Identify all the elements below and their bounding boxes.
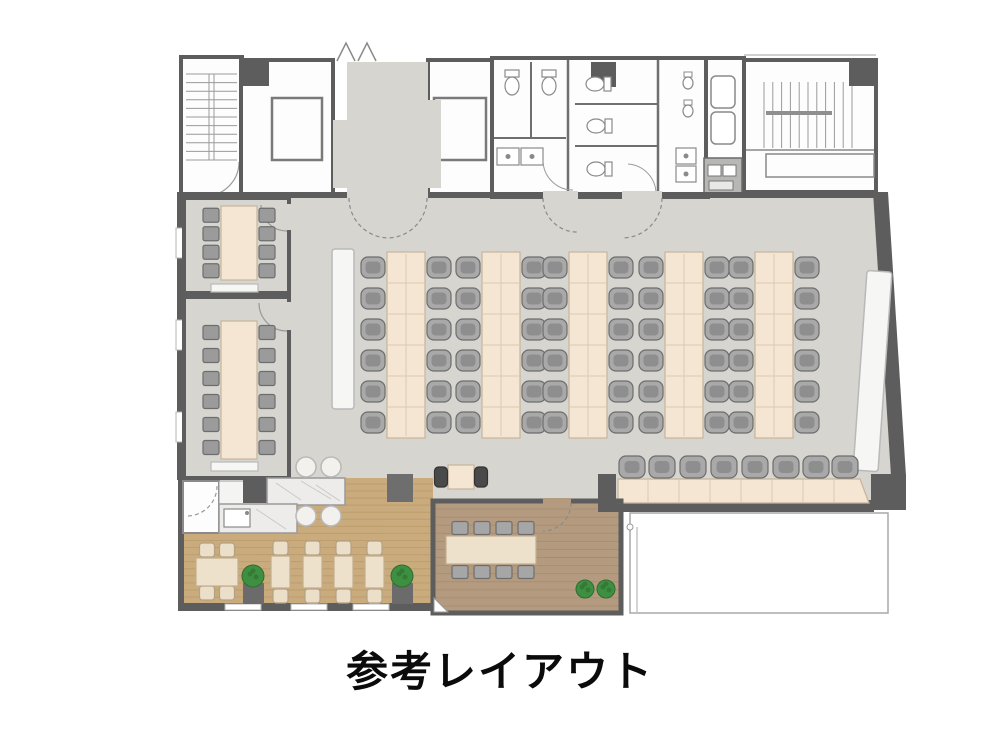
chair-seat (644, 386, 659, 398)
chair-seat (461, 386, 476, 398)
chair-seat (710, 386, 725, 398)
meeting-chair (259, 208, 275, 222)
chair-seat (710, 324, 725, 336)
cafe-chair (220, 543, 235, 557)
cafe-chair (367, 541, 382, 555)
door-gap (347, 191, 428, 199)
chair-seat (734, 262, 749, 274)
chair-seat (614, 386, 629, 398)
sink-drain (506, 154, 511, 159)
chair-seat (800, 355, 815, 367)
meeting-chair (203, 372, 219, 386)
chair-seat (366, 417, 381, 429)
chair-seat (800, 417, 815, 429)
stool (321, 457, 341, 477)
chair-seat (734, 324, 749, 336)
door-gap (622, 191, 662, 199)
chair-seat (548, 262, 563, 274)
chair-seat (527, 386, 542, 398)
chair-seat (734, 386, 749, 398)
wall-corner (871, 474, 906, 510)
chair-seat (461, 262, 476, 274)
plant-leaf (254, 575, 259, 580)
plant-leaf (604, 582, 609, 587)
chair-seat (614, 324, 629, 336)
wood-room-table (446, 536, 536, 564)
chair-seat (779, 461, 794, 473)
chair-seat (461, 417, 476, 429)
wood-room-chair (474, 522, 490, 535)
chair-seat (644, 293, 659, 305)
sink-drain (684, 172, 689, 177)
cafe-table-2top (271, 556, 290, 588)
chair-seat (432, 262, 447, 274)
survey-marker (627, 524, 633, 530)
chair-seat (366, 355, 381, 367)
wood-room-chair (496, 566, 512, 579)
urinal-icon (684, 72, 692, 77)
chair-seat (527, 355, 542, 367)
meeting-chair (203, 395, 219, 409)
faucet (245, 511, 249, 515)
window (225, 604, 261, 610)
chair-seat (710, 293, 725, 305)
toilet-icon (587, 119, 612, 133)
toilet-bowl (587, 119, 605, 133)
chair-seat (432, 324, 447, 336)
standing-table (448, 465, 474, 489)
toilet-bowl (542, 77, 556, 95)
wall-block (243, 480, 267, 503)
wall-block (849, 62, 875, 86)
meeting-chair (259, 326, 275, 340)
wood-room-chair (496, 522, 512, 535)
chair-seat (548, 293, 563, 305)
plan-caption: 参考レイアウト (0, 638, 1000, 699)
door-gap (543, 498, 571, 505)
lobby-floor (347, 62, 428, 198)
wood-room-chair (474, 566, 490, 579)
kitchenette-part (708, 165, 721, 176)
toilet-bowl (505, 77, 519, 95)
meeting-chair (259, 264, 275, 278)
chair-seat (432, 386, 447, 398)
toilet-icon (505, 70, 519, 95)
cafe-table-2top (334, 556, 353, 588)
toilet-icon (586, 77, 611, 91)
door-leaf (337, 43, 355, 61)
cafe-chair (305, 541, 320, 555)
chair-seat (644, 417, 659, 429)
cafe-chair (336, 541, 351, 555)
cafe-table-2top (303, 556, 322, 588)
chair-seat (644, 262, 659, 274)
chair-seat (625, 461, 640, 473)
chair-seat (548, 417, 563, 429)
chair-seat (710, 262, 725, 274)
toilet-tank (542, 70, 556, 77)
plant-leaf (586, 588, 591, 593)
elevator-car (434, 98, 486, 160)
chair-seat (366, 324, 381, 336)
chair-seat (461, 355, 476, 367)
wood-room-chair (518, 522, 534, 535)
chair-seat (748, 461, 763, 473)
cafe-chair (200, 543, 215, 557)
column (387, 474, 413, 502)
chair-seat (686, 461, 701, 473)
toilet-tank (605, 119, 612, 133)
toilet-bowl (586, 77, 604, 91)
chair-seat (614, 262, 629, 274)
plant-leaf (400, 569, 405, 574)
door-leaf (358, 43, 376, 61)
meeting-chair (259, 441, 275, 455)
meeting-chair (259, 245, 275, 259)
stool (296, 457, 316, 477)
chair-seat (655, 461, 670, 473)
meeting-chair (259, 418, 275, 432)
wood-room-chair (518, 566, 534, 579)
toilet-icon (542, 70, 556, 95)
cafe-chair (273, 589, 288, 603)
window (353, 604, 389, 610)
chair-seat (366, 262, 381, 274)
chair-seat (366, 386, 381, 398)
cafe-chair (305, 589, 320, 603)
elevator-car (272, 98, 322, 160)
whiteboard (211, 284, 258, 292)
chair-seat (809, 461, 824, 473)
cafe-chair (200, 586, 215, 600)
urinal-icon (684, 100, 692, 105)
chair-seat (710, 417, 725, 429)
chair-seat (614, 355, 629, 367)
chair-seat (548, 386, 563, 398)
lobby-floor (333, 120, 347, 188)
chair-seat (734, 293, 749, 305)
kitchen-counter (267, 478, 345, 505)
meeting-chair (259, 395, 275, 409)
toilet-bowl (587, 162, 605, 176)
meeting-table (221, 206, 257, 280)
balcony-outline (630, 513, 888, 613)
chair-seat (644, 355, 659, 367)
meeting-chair (203, 227, 219, 241)
chair-seat (432, 293, 447, 305)
whiteboard (332, 249, 354, 409)
meeting-chair (259, 227, 275, 241)
chair-seat (461, 324, 476, 336)
chair-seat (548, 324, 563, 336)
meeting-chair (203, 264, 219, 278)
chair-seat (527, 262, 542, 274)
sink-drain (684, 154, 689, 159)
chair-dark (435, 467, 448, 487)
chair-dark (475, 467, 488, 487)
chair-seat (527, 417, 542, 429)
meeting-chair (203, 418, 219, 432)
plant-leaf (607, 588, 612, 593)
cafe-chair (220, 586, 235, 600)
floor-plan-page: 参考レイアウト (0, 0, 1000, 750)
entry-room (183, 481, 219, 533)
plant-leaf (251, 569, 256, 574)
chair-seat (527, 293, 542, 305)
door-gap (543, 191, 578, 199)
wood-room-chair (452, 522, 468, 535)
cafe-chair (273, 541, 288, 555)
chair-seat (644, 324, 659, 336)
chair-seat (800, 386, 815, 398)
chair-seat (800, 262, 815, 274)
duct (711, 112, 735, 144)
chair-seat (614, 417, 629, 429)
plant-icon (391, 565, 413, 587)
meeting-chair (203, 208, 219, 222)
urinal-bowl (683, 77, 693, 89)
wall-block (243, 62, 269, 86)
chair-seat (734, 355, 749, 367)
chair-seat (432, 355, 447, 367)
chair-seat (710, 355, 725, 367)
meeting-chair (203, 326, 219, 340)
chair-seat (548, 355, 563, 367)
chair-seat (614, 293, 629, 305)
kitchenette-part (709, 181, 733, 190)
cafe-chair (336, 589, 351, 603)
meeting-chair (203, 245, 219, 259)
door-gap (286, 204, 292, 230)
chair-seat (734, 417, 749, 429)
cafe-chair (367, 589, 382, 603)
stool (296, 506, 316, 526)
stair-rail (766, 111, 832, 115)
chair-seat (800, 293, 815, 305)
toilet-tank (505, 70, 519, 77)
chair-seat (461, 293, 476, 305)
whiteboard (211, 462, 258, 471)
chair-seat (432, 417, 447, 429)
counter-desk (618, 479, 869, 503)
wall-block (598, 474, 616, 502)
stool (321, 506, 341, 526)
meeting-chair (203, 349, 219, 363)
lobby-floor (428, 100, 441, 188)
meeting-chair (203, 441, 219, 455)
cafe-table-2top (365, 556, 384, 588)
window (291, 604, 327, 610)
toilet-tank (605, 162, 612, 176)
chair-seat (838, 461, 853, 473)
chair-seat (527, 324, 542, 336)
meeting-chair (259, 372, 275, 386)
urinal-bowl (683, 105, 693, 117)
duct (711, 76, 735, 108)
chair-seat (800, 324, 815, 336)
plant-leaf (403, 575, 408, 580)
under-stair-cabinet (766, 154, 874, 177)
wood-room-chair (452, 566, 468, 579)
toilet-tank (604, 77, 611, 91)
chair-seat (366, 293, 381, 305)
cafe-table-4top (196, 558, 238, 586)
plant-icon (242, 565, 264, 587)
meeting-chair (259, 349, 275, 363)
sink-drain (530, 154, 535, 159)
plant-leaf (583, 582, 588, 587)
toilet-icon (587, 162, 612, 176)
chair-seat (717, 461, 732, 473)
kitchenette-part (723, 165, 736, 176)
door-gap (286, 302, 292, 330)
meeting-table (221, 321, 257, 459)
